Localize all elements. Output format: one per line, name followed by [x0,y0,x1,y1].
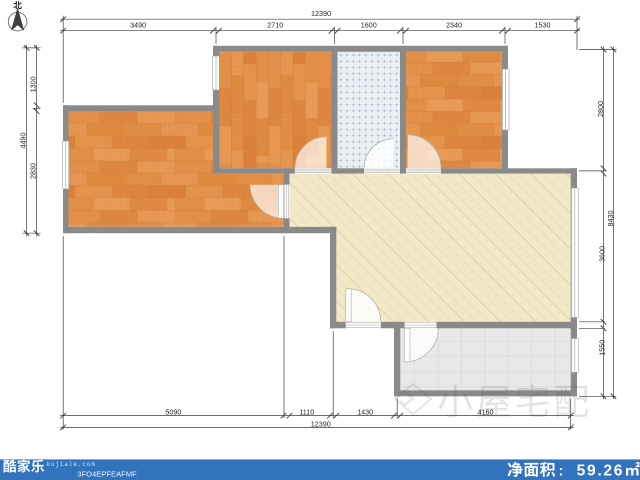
svg-text:4160: 4160 [478,407,494,416]
svg-text:2340: 2340 [446,21,462,30]
svg-text:1600: 1600 [361,21,377,30]
svg-text:3FO4EPFEAFMF: 3FO4EPFEAFMF [77,470,137,479]
svg-text:5090: 5090 [165,407,181,416]
svg-text:8430: 8430 [606,211,615,227]
svg-text:12390: 12390 [311,9,331,18]
svg-text:12390: 12390 [311,420,331,429]
svg-text:1430: 1430 [357,407,373,416]
svg-text:4490: 4490 [19,133,28,149]
svg-text:2710: 2710 [267,21,283,30]
svg-text::: : [559,462,564,479]
svg-text:3600: 3600 [597,246,606,262]
svg-text:1300: 1300 [29,76,38,92]
svg-text:kujiale.com: kujiale.com [46,461,96,468]
svg-text:59.26: 59.26 [577,463,625,480]
svg-text:1530: 1530 [535,21,551,30]
svg-text:1110: 1110 [299,407,314,416]
svg-text:1550: 1550 [598,340,607,356]
svg-text:2800: 2800 [596,101,605,117]
svg-text:3490: 3490 [130,21,146,30]
svg-text:2830: 2830 [29,163,38,179]
